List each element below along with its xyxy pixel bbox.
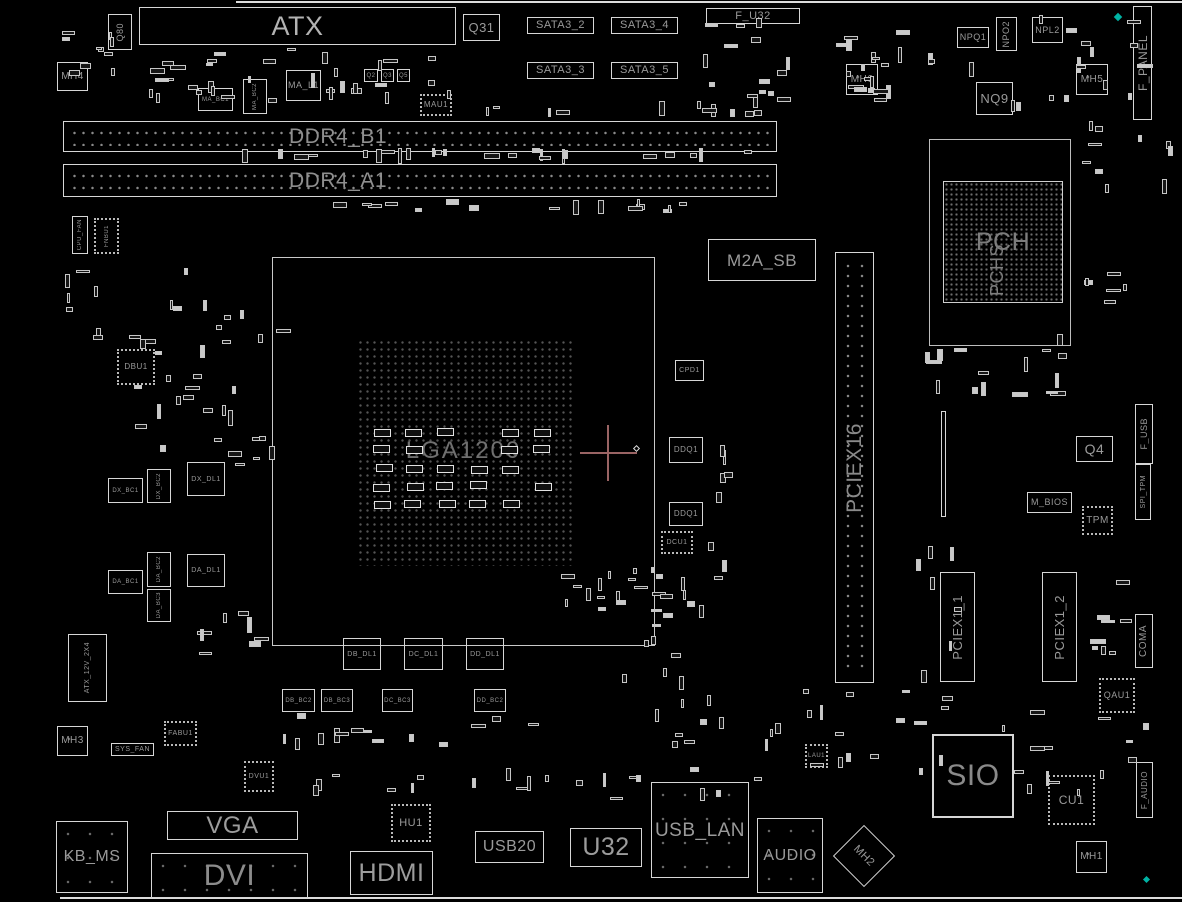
passive-component <box>1076 65 1087 69</box>
mount-hole-label: MH2 <box>851 843 876 868</box>
slot-pciex16[interactable]: PCIEX16 <box>835 252 874 683</box>
passive-component <box>1105 184 1109 192</box>
board-canvas: Q80 ATX Q31 SATA3_2 SATA3_4 SATA3_3 SATA… <box>0 0 1182 902</box>
connector-label: F_PANEL <box>1137 35 1149 91</box>
passive-component <box>493 106 500 109</box>
passive-component <box>199 652 212 656</box>
passive-component <box>705 23 718 26</box>
passive-component <box>765 739 768 751</box>
mount-hole-label: MH3 <box>61 736 84 746</box>
chip-label: HU1 <box>399 818 423 829</box>
passive-component <box>249 641 261 647</box>
passive-component <box>335 732 349 736</box>
passive-component <box>663 613 672 618</box>
passive-component <box>597 596 605 600</box>
connector-label: VGA <box>206 814 258 838</box>
component-dd-dl1[interactable]: DD_DL1 <box>466 638 504 670</box>
component-da-dl1[interactable]: DA_DL1 <box>187 554 225 587</box>
passive-component <box>240 310 244 320</box>
passive-component <box>768 91 774 97</box>
passive-component <box>1039 15 1044 25</box>
passive-component <box>914 721 927 725</box>
passive-component <box>1082 161 1092 164</box>
mount-hole-label: MH5 <box>1081 75 1104 85</box>
component-label: NPL2 <box>1035 26 1060 35</box>
chip-fnbu1[interactable]: FNBU1 <box>94 218 119 254</box>
connector-atx-12v-2x4[interactable]: ATX_12V_2X4 <box>68 634 107 702</box>
passive-component <box>697 101 700 110</box>
passive-component <box>1092 646 1098 650</box>
passive-component <box>469 205 479 211</box>
connector-dvi[interactable]: DVI <box>151 853 308 898</box>
passive-component <box>539 156 551 160</box>
component-da-bc3[interactable]: DA_BC3 <box>147 589 171 622</box>
passive-component <box>699 148 703 162</box>
passive-component <box>1137 64 1153 68</box>
connector-label: USB20 <box>483 839 536 855</box>
passive-component <box>214 438 222 441</box>
passive-component <box>203 300 207 311</box>
passive-component <box>1097 615 1110 620</box>
passive-component <box>1143 723 1149 730</box>
socket-pad <box>533 445 550 453</box>
passive-component <box>942 696 953 701</box>
passive-component <box>376 149 382 163</box>
connector-hdmi[interactable]: HDMI <box>350 851 433 895</box>
passive-component <box>754 110 762 116</box>
passive-component <box>363 150 368 158</box>
passive-component <box>417 775 424 780</box>
passive-component <box>248 76 251 83</box>
mount-hole-label: MH1 <box>1080 852 1103 862</box>
passive-component <box>1014 770 1024 774</box>
socket-pad <box>437 465 454 473</box>
connector-usb20[interactable]: USB20 <box>475 831 544 863</box>
passive-component <box>1030 746 1045 751</box>
passive-component <box>651 567 655 573</box>
passive-component <box>846 692 854 698</box>
passive-component <box>144 339 156 344</box>
component-db-bc2[interactable]: DB_BC2 <box>282 689 315 712</box>
passive-component <box>896 718 904 723</box>
connector-kb-ms[interactable]: KB_MS <box>56 821 128 893</box>
passive-component <box>573 200 579 215</box>
passive-component <box>576 780 583 786</box>
component-cpd1[interactable]: CPD1 <box>675 360 704 381</box>
passive-component <box>203 408 213 412</box>
passive-component <box>655 709 659 722</box>
passive-component <box>1085 278 1089 286</box>
passive-component <box>549 207 559 210</box>
component-nq9[interactable]: NQ9 <box>976 82 1013 115</box>
component-label: DB_DL1 <box>347 651 376 658</box>
slot-ddr4-a1[interactable]: DDR4_A1 <box>63 164 777 197</box>
passive-component <box>608 571 612 578</box>
connector-sata3-5[interactable]: SATA3_5 <box>611 62 678 79</box>
component-label: Q5 <box>399 73 408 79</box>
passive-component <box>362 203 372 206</box>
passive-component <box>166 375 171 382</box>
connector-label: HDMI <box>359 861 425 886</box>
component-dc-bc3[interactable]: DC_BC3 <box>382 689 413 712</box>
passive-component <box>1081 41 1092 47</box>
connector-label: F_U32 <box>735 11 771 22</box>
passive-component <box>720 445 724 457</box>
passive-component <box>936 380 940 394</box>
passive-component <box>707 695 712 706</box>
component-npl2[interactable]: NPL2 <box>1032 17 1063 43</box>
passive-component <box>652 624 661 628</box>
chip-label: TPM <box>1086 516 1109 526</box>
component-label: Q2 <box>366 73 375 79</box>
passive-component <box>156 93 159 104</box>
passive-component <box>930 577 935 591</box>
passive-component <box>659 101 665 116</box>
passive-component <box>294 154 309 160</box>
socket-label: LGA1200 <box>273 439 654 463</box>
passive-component <box>1100 770 1104 780</box>
slot-pins <box>70 170 770 191</box>
chip-hu1[interactable]: HU1 <box>391 804 431 842</box>
passive-component <box>322 52 328 64</box>
passive-component <box>1095 126 1103 131</box>
connector-label: ATX_12V_2X4 <box>84 642 91 693</box>
passive-component <box>1088 143 1103 146</box>
passive-component <box>287 48 296 51</box>
passive-component <box>184 268 188 275</box>
passive-component <box>928 546 933 559</box>
connector-spi-tpm[interactable]: SPI_TPM <box>1135 464 1151 520</box>
passive-component <box>586 588 591 601</box>
passive-component <box>140 339 145 350</box>
passive-component <box>492 716 501 722</box>
passive-component <box>754 777 761 781</box>
passive-component <box>861 64 865 70</box>
passive-component <box>216 325 222 329</box>
passive-component <box>708 542 714 551</box>
component-dx-bc2[interactable]: DX_BC2 <box>147 469 171 503</box>
connector-label: SATA3_4 <box>620 20 669 31</box>
passive-component <box>949 641 952 651</box>
passive-component <box>387 788 396 792</box>
passive-component <box>1101 646 1106 655</box>
slot-label: DDR4_A1 <box>289 170 387 191</box>
connector-sata3-4[interactable]: SATA3_4 <box>611 17 678 34</box>
passive-component <box>206 63 214 66</box>
connector-label: M2A_SB <box>727 252 797 269</box>
passive-component <box>1048 781 1060 784</box>
passive-component <box>435 150 442 156</box>
connector-atx[interactable]: ATX <box>139 7 456 45</box>
passive-component <box>747 94 758 99</box>
socket-pad <box>406 446 423 454</box>
connector-f-u32[interactable]: F_U32 <box>706 8 800 24</box>
passive-component <box>254 637 269 642</box>
chip-fabu1[interactable]: FABU1 <box>164 721 197 746</box>
component-db-bc3[interactable]: DB_BC3 <box>321 689 353 712</box>
slot-label: PCIEX1_1 <box>951 595 964 660</box>
component-label: DDQ1 <box>674 446 698 454</box>
passive-component <box>775 723 781 734</box>
passive-component <box>221 95 235 99</box>
connector-cpu-fan[interactable]: CPU_FAN <box>72 216 88 254</box>
chip-dbu1[interactable]: DBU1 <box>117 349 155 385</box>
passive-component <box>176 396 180 406</box>
passive-component <box>709 82 715 86</box>
connector-vga[interactable]: VGA <box>167 811 298 840</box>
component-db-dl1[interactable]: DB_DL1 <box>343 638 381 670</box>
passive-component <box>969 62 974 77</box>
component-dc-dl1[interactable]: DC_DL1 <box>404 638 443 670</box>
slot-pciex1-1[interactable]: PCIEX1_1 <box>940 572 975 682</box>
component-ddq1-a[interactable]: DDQ1 <box>669 437 703 463</box>
chip-sio[interactable]: SIO <box>932 734 1014 818</box>
passive-component <box>334 68 338 78</box>
passive-component <box>803 689 809 695</box>
socket-pad <box>437 428 454 436</box>
passive-component <box>76 270 91 273</box>
passive-component <box>870 754 880 760</box>
socket-pad <box>439 500 456 508</box>
passive-component <box>283 734 287 744</box>
socket-pad <box>373 445 390 453</box>
passive-component <box>736 24 745 28</box>
passive-component <box>183 395 194 400</box>
mount-hole-mh1[interactable]: MH1 <box>1076 841 1107 873</box>
passive-component <box>247 617 253 633</box>
teal-marker-top <box>1114 13 1122 21</box>
mount-hole-mh2[interactable]: MH2 <box>833 825 895 887</box>
passive-component <box>616 591 619 601</box>
passive-component <box>150 68 164 74</box>
passive-component <box>65 274 71 288</box>
passive-component <box>745 111 755 117</box>
passive-component <box>258 334 263 343</box>
component-q3[interactable]: Q3 <box>381 69 394 82</box>
chip-tpm[interactable]: TPM <box>1082 506 1113 535</box>
component-label: DD_DL1 <box>470 651 500 658</box>
passive-component <box>155 351 162 355</box>
component-dx-bc1[interactable]: DX_BC1 <box>108 478 143 503</box>
passive-component <box>651 636 656 645</box>
component-ma-bc2[interactable]: MA_BC2 <box>243 79 267 114</box>
passive-component <box>447 90 452 99</box>
connector-label: F_AUDIO <box>1141 771 1149 809</box>
passive-component <box>155 78 170 82</box>
component-label: DA_BC1 <box>112 579 138 585</box>
passive-component <box>770 729 773 737</box>
connector-sata3-3[interactable]: SATA3_3 <box>527 62 594 79</box>
component-label: DX_BC1 <box>112 488 138 494</box>
passive-component <box>207 59 218 64</box>
connector-f-usb[interactable]: F_USB <box>1135 404 1153 464</box>
passive-component <box>683 590 686 600</box>
passive-component <box>1016 102 1022 111</box>
chip-label: MAU1 <box>424 101 448 109</box>
passive-component <box>679 676 684 690</box>
passive-component <box>508 153 517 158</box>
slot-ddr4-b1[interactable]: DDR4_B1 <box>63 121 777 152</box>
passive-component <box>1049 95 1054 101</box>
passive-component <box>679 202 687 206</box>
component-npo2[interactable]: NPO2 <box>996 17 1017 51</box>
passive-component <box>193 374 202 379</box>
passive-component <box>228 451 243 457</box>
passive-component <box>111 68 116 76</box>
passive-component <box>1128 93 1131 100</box>
passive-component <box>415 208 422 212</box>
connector-label: COMA <box>1139 625 1149 657</box>
passive-component <box>129 335 141 339</box>
component-label: DA_DL1 <box>191 567 220 574</box>
passive-component <box>846 71 851 77</box>
passive-component <box>1095 169 1104 173</box>
chip-qau1[interactable]: QAU1 <box>1099 678 1135 713</box>
passive-component <box>1046 391 1058 395</box>
component-da-bc2[interactable]: DA_BC2 <box>147 552 171 587</box>
connector-u32[interactable]: U32 <box>570 828 642 867</box>
component-q4[interactable]: Q4 <box>1076 436 1113 462</box>
connector-sys-fan[interactable]: SYS_FAN <box>111 743 154 756</box>
passive-component <box>96 328 101 336</box>
passive-component <box>333 202 347 208</box>
passive-component <box>672 741 678 749</box>
socket-pad <box>376 464 393 472</box>
component-q2[interactable]: Q2 <box>364 69 378 82</box>
passive-component <box>981 382 986 396</box>
passive-component <box>135 424 147 428</box>
connector-f-audio[interactable]: F_AUDIO <box>1136 762 1153 818</box>
slot-pciex1-2[interactable]: PCIEX1_2 <box>1042 572 1077 682</box>
component-ddq1-b[interactable]: DDQ1 <box>669 502 703 526</box>
passive-component <box>684 740 695 745</box>
passive-component <box>527 776 531 791</box>
passive-component <box>297 713 306 719</box>
connector-m2a-sb[interactable]: M2A_SB <box>708 239 816 281</box>
passive-component <box>1089 121 1093 131</box>
passive-component <box>700 788 705 802</box>
passive-component <box>406 148 411 160</box>
component-label: NQ9 <box>980 92 1008 105</box>
connector-label: KB_MS <box>64 849 121 865</box>
component-dd-bc2[interactable]: DD_BC2 <box>474 689 506 712</box>
passive-component <box>634 586 648 590</box>
passive-component <box>295 738 300 750</box>
component-label: Q31 <box>468 21 494 34</box>
passive-component <box>702 108 717 114</box>
chip-pch[interactable]: PCH PCHS <box>943 181 1063 303</box>
passive-component <box>263 59 275 63</box>
passive-component <box>978 371 989 376</box>
component-dx-dl1[interactable]: DX_DL1 <box>187 462 225 496</box>
passive-component <box>1077 789 1080 797</box>
passive-component <box>896 30 909 35</box>
connector-label: SATA3_3 <box>536 65 585 76</box>
chip-dvu1[interactable]: DVU1 <box>244 761 274 792</box>
passive-component <box>872 57 880 60</box>
passive-component <box>170 300 173 311</box>
passive-component <box>228 410 233 426</box>
passive-component <box>375 83 388 87</box>
passive-component <box>1101 620 1115 623</box>
chip-label: SIO <box>946 761 999 791</box>
passive-component <box>484 153 499 159</box>
vertical-connector-outline <box>941 411 946 517</box>
passive-component <box>565 599 569 606</box>
passive-component <box>722 560 727 572</box>
passive-component <box>681 577 685 592</box>
passive-component <box>573 585 582 588</box>
passive-component <box>259 436 266 441</box>
passive-component <box>62 31 75 35</box>
component-da-bc1[interactable]: DA_BC1 <box>108 570 143 594</box>
chip-dcu1[interactable]: DCU1 <box>661 531 693 554</box>
passive-component <box>471 724 485 728</box>
component-q5[interactable]: Q5 <box>397 69 410 82</box>
passive-component <box>134 385 142 389</box>
passive-component <box>409 734 414 742</box>
socket-pad <box>404 500 421 508</box>
passive-component <box>1012 392 1027 397</box>
passive-component <box>714 576 723 580</box>
component-label: DD_BC2 <box>477 698 504 704</box>
component-label: NPQ1 <box>960 33 987 42</box>
passive-component <box>1011 100 1014 111</box>
chip-m-bios[interactable]: M_BIOS <box>1027 492 1072 513</box>
chip-label: DCU1 <box>666 539 687 546</box>
connector-audio[interactable]: AUDIO <box>757 818 823 893</box>
passive-component <box>687 601 695 607</box>
passive-component <box>939 755 943 766</box>
passive-component <box>716 790 721 797</box>
component-label: DB_BC2 <box>285 698 311 704</box>
socket-pad <box>469 500 486 508</box>
connector-label: SATA3_2 <box>536 20 585 31</box>
component-label: MA_BC2 <box>252 83 258 110</box>
connector-coma[interactable]: COMA <box>1135 614 1153 668</box>
component-ma-l1[interactable]: MA_L1 <box>286 70 321 101</box>
passive-component <box>628 206 643 211</box>
passive-component <box>665 152 675 158</box>
passive-component <box>1127 20 1141 24</box>
mount-hole-mh3[interactable]: MH3 <box>57 726 88 756</box>
passive-component <box>196 90 203 95</box>
passive-component <box>69 70 79 76</box>
passive-component <box>919 768 923 776</box>
slot-label: PCIEX16 <box>844 423 865 513</box>
passive-component <box>235 463 244 467</box>
passive-component <box>719 717 724 730</box>
connector-label: ATX <box>271 13 323 40</box>
passive-component <box>1107 272 1121 276</box>
passive-component <box>1090 47 1094 57</box>
passive-component <box>854 87 867 91</box>
passive-component <box>681 699 685 708</box>
passive-component <box>506 768 511 781</box>
passive-component <box>222 340 231 343</box>
passive-component <box>1024 357 1029 372</box>
component-npq1[interactable]: NPQ1 <box>957 27 989 48</box>
passive-component <box>80 63 91 68</box>
component-q31[interactable]: Q31 <box>463 14 500 41</box>
passive-component <box>428 80 434 86</box>
passive-component <box>716 492 722 503</box>
passive-component <box>756 18 762 27</box>
slot-pins <box>70 127 770 146</box>
connector-sata3-2[interactable]: SATA3_2 <box>527 17 594 34</box>
component-ma-bc1[interactable]: MA_BC1 <box>198 88 233 111</box>
passive-component <box>62 37 69 41</box>
